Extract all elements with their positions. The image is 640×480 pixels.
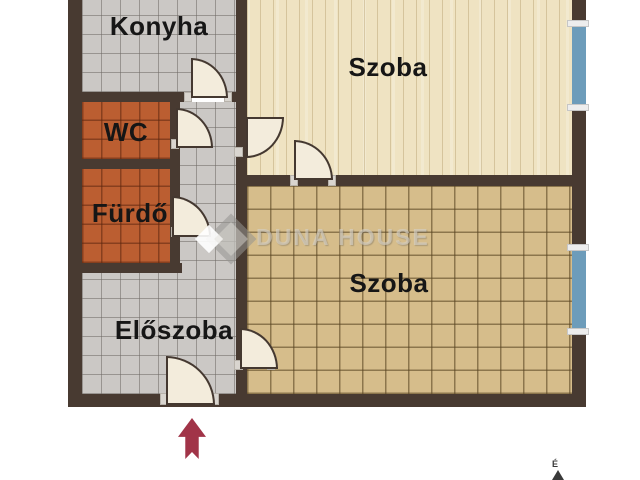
label-wc: WC: [82, 117, 170, 148]
entrance-arrow-icon: [178, 418, 206, 459]
window-1-cap-bottom: [567, 104, 589, 111]
label-szoba-top: Szoba: [247, 52, 529, 83]
label-konyha: Konyha: [82, 11, 236, 42]
compass-north-label: É: [552, 459, 558, 469]
label-eloszoba: Előszoba: [92, 315, 256, 346]
floorplan: Konyha WC Fürdő Előszoba Szoba Szoba DUN…: [0, 0, 640, 480]
label-furdo: Fürdő: [82, 198, 178, 229]
door-szoba-top-hinge: [234, 147, 243, 157]
label-szoba-bottom: Szoba: [247, 268, 531, 299]
window-1-cap-top: [567, 20, 589, 27]
wall-below-furdo: [82, 263, 182, 273]
window-2-cap-top: [567, 244, 589, 251]
compass-needle-icon: [552, 470, 564, 480]
window-1: [572, 27, 586, 104]
window-2: [572, 251, 586, 328]
window-2-cap-bottom: [567, 328, 589, 335]
watermark-text: DUNA HOUSE: [256, 224, 446, 251]
duna-house-logo-icon: [205, 215, 259, 265]
wall-wc-furdo: [82, 159, 180, 169]
wall-outer-bottom: [68, 394, 586, 407]
wall-outer-left: [68, 0, 82, 407]
